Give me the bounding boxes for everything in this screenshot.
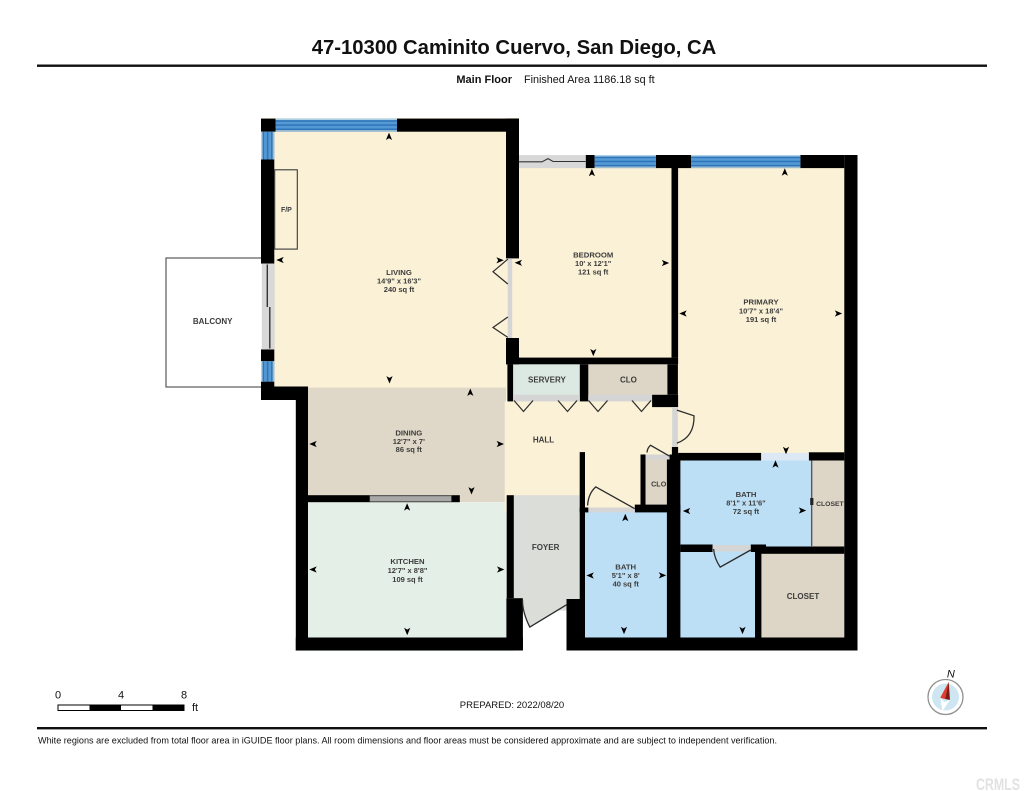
- svg-text:12'7" x 8'8": 12'7" x 8'8": [388, 566, 428, 575]
- svg-text:72 sq ft: 72 sq ft: [733, 507, 760, 516]
- svg-text:Main Floor: Main Floor: [456, 74, 512, 86]
- svg-text:PRIMARY: PRIMARY: [743, 298, 778, 307]
- svg-text:121 sq ft: 121 sq ft: [578, 268, 609, 277]
- svg-text:HALL: HALL: [533, 435, 554, 444]
- svg-text:47-10300 Caminito Cuervo, San: 47-10300 Caminito Cuervo, San Diego, CA: [312, 37, 717, 59]
- svg-text:40 sq ft: 40 sq ft: [613, 580, 640, 589]
- svg-text:BATH: BATH: [615, 563, 636, 572]
- svg-text:10'7" x 18'4": 10'7" x 18'4": [739, 306, 783, 315]
- svg-text:F/P: F/P: [281, 207, 292, 214]
- svg-text:0: 0: [55, 690, 61, 702]
- svg-text:CLOSET: CLOSET: [816, 501, 844, 508]
- svg-text:CLO: CLO: [620, 375, 637, 384]
- svg-text:Finished Area 1186.18 sq ft: Finished Area 1186.18 sq ft: [524, 74, 655, 86]
- svg-text:White regions are excluded fro: White regions are excluded from total fl…: [38, 736, 777, 746]
- svg-text:109 sq ft: 109 sq ft: [392, 575, 423, 584]
- svg-text:BALCONY: BALCONY: [193, 317, 233, 326]
- svg-text:CLOSET: CLOSET: [787, 592, 820, 601]
- svg-text:CRMLS: CRMLS: [976, 775, 1020, 791]
- svg-text:ft: ft: [192, 702, 198, 714]
- svg-text:FOYER: FOYER: [532, 543, 560, 552]
- svg-text:191 sq ft: 191 sq ft: [746, 315, 777, 324]
- svg-text:SERVERY: SERVERY: [528, 375, 566, 384]
- svg-text:KITCHEN: KITCHEN: [390, 557, 425, 566]
- svg-text:86 sq ft: 86 sq ft: [396, 445, 423, 454]
- svg-text:PREPARED: 2022/08/20: PREPARED: 2022/08/20: [460, 700, 564, 711]
- svg-text:240 sq ft: 240 sq ft: [384, 285, 415, 294]
- svg-text:N: N: [947, 669, 955, 681]
- svg-text:4: 4: [118, 690, 124, 702]
- svg-text:8: 8: [181, 690, 187, 702]
- svg-text:CLO: CLO: [651, 479, 667, 488]
